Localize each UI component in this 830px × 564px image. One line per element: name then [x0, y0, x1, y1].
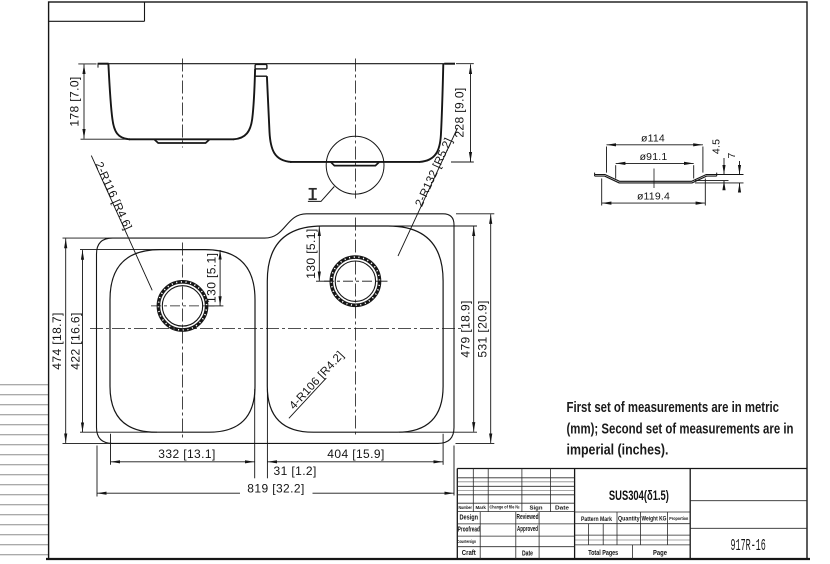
- svg-text:(mm); Second set of measuremen: (mm); Second set of measurements are in: [567, 420, 794, 437]
- svg-text:31 [1.2]: 31 [1.2]: [274, 464, 317, 478]
- svg-text:Craft: Craft: [462, 548, 476, 557]
- svg-text:Change of file №: Change of file №: [490, 505, 520, 510]
- svg-text:Date: Date: [555, 506, 570, 512]
- svg-text:Pattern Mark: Pattern Mark: [581, 516, 612, 523]
- svg-text:7: 7: [726, 152, 738, 158]
- svg-text:819 [32.2]: 819 [32.2]: [247, 482, 304, 496]
- svg-text:Quantity: Quantity: [618, 515, 640, 522]
- svg-text:Design: Design: [460, 513, 479, 522]
- svg-text:ø114: ø114: [641, 133, 665, 145]
- svg-text:Countersign: Countersign: [457, 539, 476, 544]
- svg-text:130 [5.1]: 130 [5.1]: [205, 253, 219, 303]
- svg-text:Total Pages: Total Pages: [588, 548, 618, 557]
- svg-text:531 [20.9]: 531 [20.9]: [476, 300, 490, 357]
- svg-text:4.5: 4.5: [711, 139, 723, 154]
- svg-text:404 [15.9]: 404 [15.9]: [327, 447, 384, 461]
- svg-text:228 [9.0]: 228 [9.0]: [453, 87, 467, 137]
- svg-text:474 [18.7]: 474 [18.7]: [50, 312, 64, 369]
- svg-text:332 [13.1]: 332 [13.1]: [158, 447, 215, 461]
- svg-text:130 [5.1]: 130 [5.1]: [304, 228, 318, 278]
- svg-text:178 [7.0]: 178 [7.0]: [68, 76, 82, 126]
- svg-text:ø119.4: ø119.4: [637, 191, 670, 203]
- svg-text:479 [18.9]: 479 [18.9]: [458, 300, 472, 357]
- svg-text:Proportion: Proportion: [669, 516, 688, 521]
- svg-text:Mark: Mark: [475, 505, 486, 510]
- svg-text:Sign: Sign: [530, 506, 543, 512]
- svg-text:422 [16.6]: 422 [16.6]: [68, 312, 82, 369]
- svg-text:Proofread: Proofread: [458, 525, 480, 534]
- svg-text:Weight KG: Weight KG: [642, 515, 667, 522]
- svg-text:Approved: Approved: [517, 524, 538, 533]
- svg-text:Date: Date: [522, 548, 533, 557]
- svg-text:SUS304(δ1.5): SUS304(δ1.5): [609, 488, 669, 503]
- svg-text:Page: Page: [653, 548, 667, 557]
- svg-text:First set of measurements are: First set of measurements are in metric: [567, 399, 780, 416]
- svg-text:ø91.1: ø91.1: [640, 151, 668, 163]
- svg-text:Number: Number: [458, 505, 472, 510]
- svg-text:917R-16: 917R-16: [731, 536, 766, 555]
- svg-text:imperial (inches).: imperial (inches).: [567, 442, 669, 459]
- svg-text:Reviewed: Reviewed: [517, 512, 539, 521]
